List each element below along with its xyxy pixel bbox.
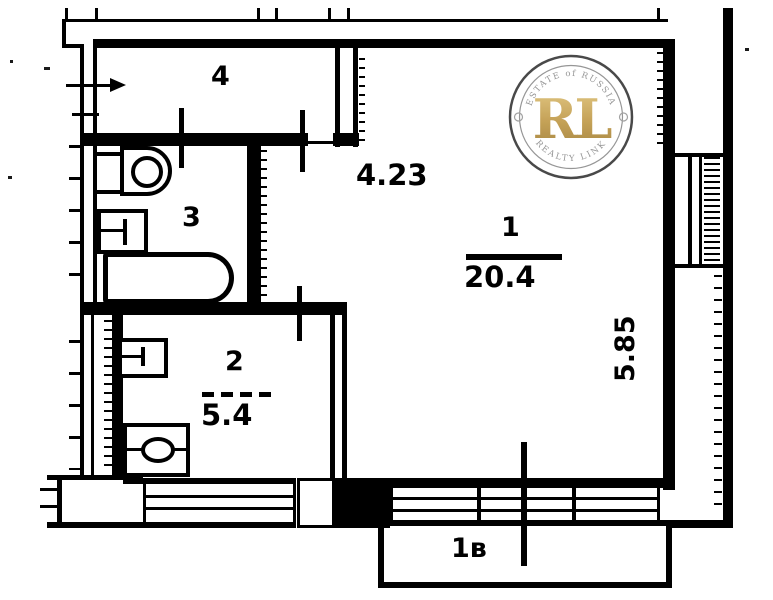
- dimension-living-width: 4.23: [356, 161, 428, 190]
- wall: [247, 133, 261, 315]
- party-wall-tick: [95, 8, 98, 20]
- wall-ticks: [69, 340, 80, 470]
- wall-hatch: [657, 52, 663, 148]
- entrance-arrow-icon: [110, 78, 126, 92]
- dimension-living-depth: 5.85: [612, 315, 639, 382]
- door-mark: [297, 286, 302, 341]
- floor-plan: 4 3 1 20.4 2 5.4 1в 4.23 5.85 RL ESTATE …: [0, 0, 773, 600]
- kitchen-window: [293, 478, 296, 528]
- room-living-number: 1: [501, 214, 520, 241]
- washbasin-tap-icon: [123, 219, 127, 245]
- shaft-niche: [675, 264, 723, 268]
- party-wall-tick: [257, 8, 260, 20]
- wall: [62, 19, 668, 22]
- party-wall-tick: [275, 8, 278, 20]
- realty-link-watermark: RL ESTATE of RUSSIA REALTY LINK: [506, 52, 636, 182]
- door-mark: [300, 110, 305, 172]
- bathtub-icon: [103, 252, 234, 304]
- balcony-wall: [378, 526, 384, 588]
- living-window: [390, 478, 393, 526]
- wall: [342, 315, 347, 478]
- wall: [672, 520, 733, 528]
- print-speck: [10, 60, 13, 63]
- wall: [723, 8, 733, 528]
- room-bathroom-number: 3: [182, 204, 201, 231]
- wall: [57, 480, 62, 528]
- wall-ticks: [69, 145, 80, 305]
- wall: [93, 39, 665, 48]
- kitchen-tap-icon: [141, 347, 145, 366]
- stove-burner-icon: [141, 437, 175, 463]
- wall: [353, 48, 358, 147]
- wall-hatch: [261, 150, 267, 300]
- wall-hatch: [359, 58, 365, 146]
- print-speck: [745, 48, 749, 51]
- balcony-wall: [666, 526, 672, 588]
- wall-pier: [297, 478, 335, 528]
- wall: [330, 315, 335, 478]
- room-kitchen-underline: [202, 392, 278, 397]
- entrance-mark: [72, 113, 99, 116]
- shaft-hatch: [704, 157, 720, 264]
- washbasin-tap-icon: [97, 229, 126, 232]
- kitchen-window-sill: [143, 495, 293, 498]
- toilet-icon: [131, 156, 163, 188]
- shaft-niche: [699, 157, 702, 264]
- wall: [80, 315, 84, 475]
- wall: [335, 48, 340, 147]
- party-wall-tick: [328, 8, 331, 20]
- kitchen-window: [143, 478, 146, 528]
- door-threshold: [308, 141, 333, 144]
- door-mark: [179, 108, 184, 168]
- wall: [83, 133, 308, 146]
- kitchen-window-sill: [143, 507, 293, 510]
- room-hallway-number: 4: [211, 63, 230, 90]
- balcony-door-mark: [521, 442, 527, 566]
- balcony-label: 1в: [451, 535, 487, 562]
- balcony-wall: [378, 582, 672, 588]
- wall-hatch: [104, 320, 112, 470]
- wall: [123, 478, 295, 484]
- living-window: [657, 478, 660, 526]
- shaft-niche: [688, 157, 692, 264]
- party-wall-tick: [347, 8, 350, 20]
- room-kitchen-area: 5.4: [201, 401, 252, 430]
- party-wall-tick: [657, 8, 660, 20]
- wall-tick: [40, 505, 57, 508]
- room-kitchen-number: 2: [225, 348, 244, 375]
- print-speck: [8, 176, 12, 179]
- wall-tick: [40, 488, 57, 491]
- wall: [333, 478, 672, 488]
- print-speck: [44, 67, 50, 70]
- wall: [47, 522, 295, 528]
- room-living-area: 20.4: [464, 263, 536, 292]
- wall: [91, 315, 94, 475]
- wall-hatch: [714, 275, 722, 515]
- wall: [663, 39, 675, 490]
- party-wall-tick: [65, 8, 68, 20]
